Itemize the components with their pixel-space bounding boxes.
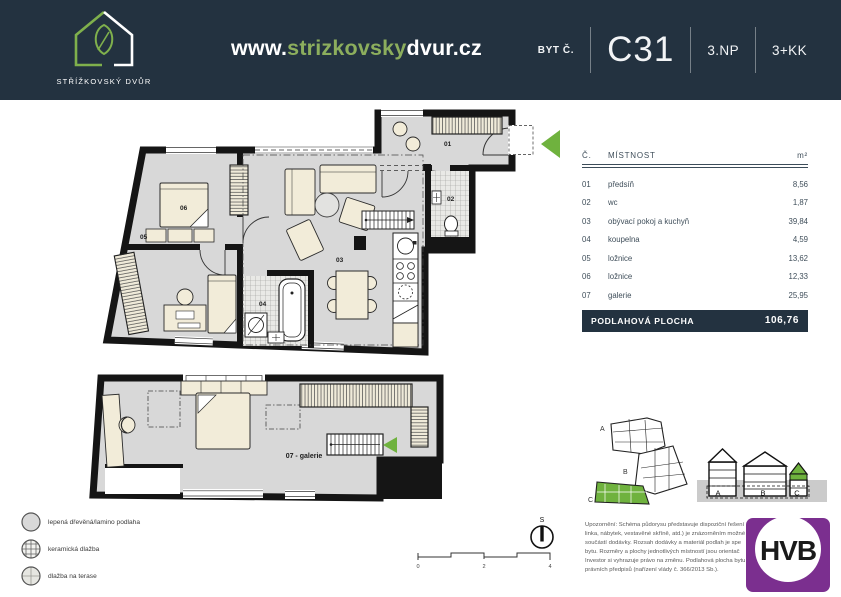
company-logo: STŘÍŽKOVSKÝ DVŮR [44, 8, 164, 86]
url-highlight: strizkovsky [287, 36, 406, 60]
logo-title: STŘÍŽKOVSKÝ DVŮR [44, 77, 164, 86]
room-label-01: 01 [444, 141, 452, 148]
disclaimer-line: Upozornění: Schéma půdorysu představuje … [585, 521, 763, 530]
wall-mass [380, 457, 442, 499]
recess [105, 467, 180, 494]
footprint-label-a: A [600, 426, 605, 433]
ceramic-tile-swatch-icon [20, 538, 42, 560]
scale-bar: 0 2 4 [416, 553, 551, 570]
room-name: koupelna [608, 235, 764, 244]
hvb-logo-icon: HVB [746, 518, 830, 592]
room-area: 4,59 [764, 235, 808, 244]
scale-tick: 2 [482, 564, 485, 570]
main-floor-plan: 01 02 03 04 05 06 [107, 109, 560, 352]
building-footprint [595, 418, 687, 504]
room-name: galerie [608, 291, 764, 300]
room-name: wc [608, 198, 764, 207]
col-name: MÍSTNOST [608, 151, 764, 160]
bench [146, 229, 166, 242]
disclaimer-line: bytu. Rozměry a plochy jednotlivých míst… [585, 548, 763, 557]
unit-number: C31 [607, 30, 674, 70]
legend-item: dlažba na terase [20, 565, 140, 587]
wardrobe [300, 384, 412, 407]
header-rule [582, 167, 808, 168]
legend-item: lepená dřevěná/lamino podlaha [20, 511, 140, 533]
sofa [320, 165, 376, 193]
table-row: 04 koupelna 4,59 [582, 235, 808, 244]
legend-label: lepená dřevěná/lamino podlaha [48, 519, 140, 526]
table-row: 07 galerie 25,95 [582, 291, 808, 300]
floor-plan-drawing: 01 02 03 04 05 06 [80, 105, 580, 520]
room-area: 1,87 [764, 198, 808, 207]
room-number: 02 [582, 198, 608, 207]
table-header: Č. MÍSTNOST m² [582, 151, 808, 165]
room-label-06: 06 [180, 205, 188, 212]
room-area: 39,84 [764, 217, 808, 226]
staircase [327, 434, 383, 455]
north-indicator: S [531, 517, 553, 548]
disclaimer-line: linka, nábytek, vestavěné skříně, atd.) … [585, 530, 763, 539]
room-label-gallery: 07 - galerie [286, 453, 323, 460]
table-row: 06 ložnice 12,33 [582, 272, 808, 281]
col-area: m² [764, 151, 808, 160]
legend-item: keramická dlažba [20, 538, 140, 560]
footprint-label-c: C [588, 497, 593, 504]
chair [177, 289, 193, 305]
coffee-table [315, 193, 339, 217]
url-prefix: www. [231, 36, 287, 60]
room-number: 03 [582, 217, 608, 226]
room-label-05: 05 [140, 234, 148, 241]
plain-floor-swatch-icon [20, 511, 42, 533]
entrance-arrow-icon [541, 130, 560, 158]
terrace-tile-swatch-icon [20, 565, 42, 587]
room-area: 12,33 [764, 272, 808, 281]
total-value: 106,76 [765, 315, 799, 326]
site-plan: A B C A B C [585, 412, 835, 517]
room-number: 01 [582, 180, 608, 189]
website-url: www.strizkovskydvur.cz [231, 36, 482, 61]
disclaimer-line: Investor si vyhrazuje právo na změnu. Po… [585, 557, 763, 566]
room-label-03: 03 [336, 257, 344, 264]
divider [590, 27, 591, 73]
unit-floor: 3.NP [707, 43, 739, 58]
room-area: 13,62 [764, 254, 808, 263]
total-area-banner: PODLAHOVÁ PLOCHA 106,76 [582, 310, 808, 332]
table-row: 01 předsíň 8,56 [582, 180, 808, 189]
divider [690, 27, 691, 73]
staircase [362, 211, 414, 229]
bench [168, 229, 192, 242]
sofa [285, 169, 315, 215]
room-number: 04 [582, 235, 608, 244]
room-area: 8,56 [764, 180, 808, 189]
room-name: ložnice [608, 254, 764, 263]
room-number: 06 [582, 272, 608, 281]
table-row: 02 wc 1,87 [582, 198, 808, 207]
gallery-floor-plan: 07 - galerie [93, 374, 442, 499]
divider [755, 27, 756, 73]
elevation-label-c: C [794, 489, 800, 498]
disclaimer-line: právních předpisů (nařízení vlády č. 366… [585, 566, 763, 575]
room-number: 07 [582, 291, 608, 300]
building-elevation: A B C [697, 449, 827, 502]
room-label-04: 04 [259, 301, 267, 308]
footprint-label-b: B [623, 469, 628, 476]
room-label-02: 02 [447, 196, 455, 203]
table-row: 03 obývací pokoj a kuchyň 39,84 [582, 217, 808, 226]
north-label: S [540, 517, 545, 524]
disclaimer-line: součástí dodávky. Rozsah dodávky a mater… [585, 539, 763, 548]
total-label: PODLAHOVÁ PLOCHA [591, 316, 694, 326]
room-name: ložnice [608, 272, 764, 281]
room-name: obývací pokoj a kuchyň [608, 217, 764, 226]
header-bar: STŘÍŽKOVSKÝ DVŮR www.strizkovskydvur.cz … [0, 0, 841, 100]
house-leaf-icon [67, 8, 141, 70]
hvb-logo-text: HVB [760, 535, 816, 566]
room-name: předsíň [608, 180, 764, 189]
pouf [393, 122, 407, 136]
wardrobe [411, 407, 428, 447]
scale-tick: 0 [416, 564, 419, 570]
kitchen [393, 233, 418, 347]
legend-label: dlažba na terase [48, 573, 97, 580]
table-row: 05 ložnice 13,62 [582, 254, 808, 263]
unit-info: BYT Č. C31 3.NP 3+KK [538, 0, 807, 100]
scale-tick: 4 [548, 564, 551, 570]
elevation-label-b: B [760, 489, 765, 498]
unit-label: BYT Č. [538, 45, 574, 56]
room-table: Č. MÍSTNOST m² 01 předsíň 8,56 02 wc 1,8… [582, 151, 808, 332]
url-suffix: dvur.cz [406, 36, 482, 60]
disclaimer-text: Upozornění: Schéma půdorysu představuje … [585, 521, 763, 575]
col-number: Č. [582, 151, 608, 160]
wardrobe [432, 117, 502, 134]
scale-and-compass: S 0 2 4 [405, 512, 575, 577]
room-area: 25,95 [764, 291, 808, 300]
wardrobe [230, 165, 248, 215]
elevation-label-a: A [715, 489, 720, 498]
column [354, 236, 366, 250]
partner-logo-hvb: HVB [746, 518, 830, 597]
toilet [445, 216, 458, 232]
unit-layout: 3+KK [772, 43, 807, 58]
floor-legend: lepená dřevěná/lamino podlaha keramická … [20, 511, 140, 592]
bench [194, 229, 214, 242]
legend-label: keramická dlažba [48, 546, 99, 553]
pouf [406, 137, 420, 151]
room-number: 05 [582, 254, 608, 263]
